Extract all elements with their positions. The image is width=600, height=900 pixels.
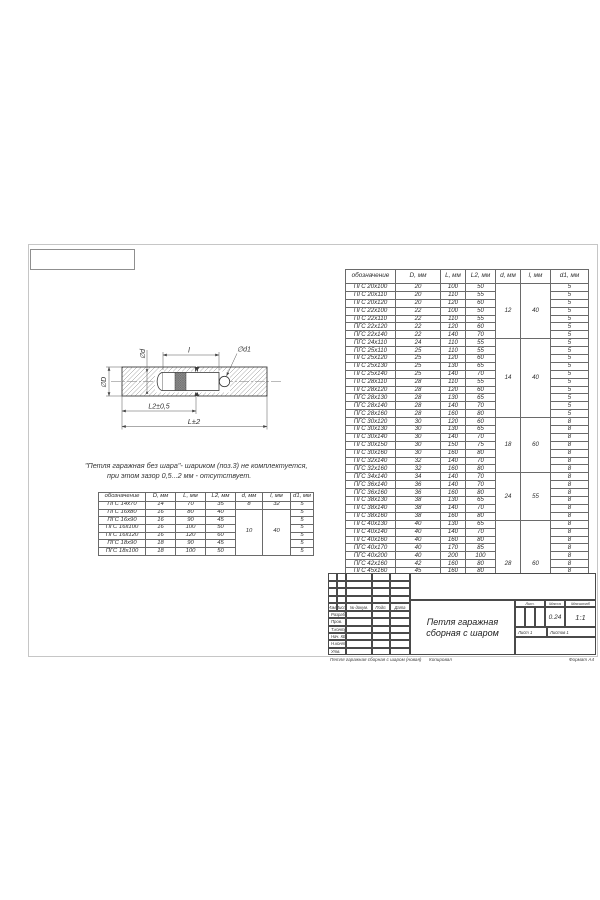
cell-designation: ПГС 14х70 [99, 502, 146, 510]
cell-designation: ПГС 36х140 [346, 481, 396, 489]
titleblock-cell: Изм. [328, 603, 337, 611]
table-row: ПГС 22х12022120605 [346, 323, 589, 331]
table-row: ПГС 30х13030130658 [346, 426, 589, 434]
cell-L2: 85 [466, 544, 496, 552]
titleblock-cell [515, 637, 596, 655]
cell-d: 14 [496, 339, 521, 418]
corner-stamp-box [30, 249, 135, 270]
table-row: ПГС 40х200402001008 [346, 552, 589, 560]
cell-D: 28 [396, 410, 441, 418]
cell-designation: ПГС 32х160 [346, 465, 396, 473]
cell-L2: 70 [466, 402, 496, 410]
note-line-1: "Петля гаражная без шара"- шариком (поз.… [85, 461, 307, 470]
titleblock-cell [390, 640, 410, 647]
cell-d1: 8 [551, 528, 589, 536]
header-cell: L, мм [441, 270, 466, 284]
cell-L2: 75 [466, 441, 496, 449]
titleblock-cell [337, 588, 346, 596]
table-row: ПГС 40х16040160808 [346, 536, 589, 544]
cell-L2: 70 [466, 473, 496, 481]
table-row: ПГС 30х16030160808 [346, 449, 589, 457]
header-cell: l, мм [521, 270, 551, 284]
cell-designation: ПГС 36х160 [346, 489, 396, 497]
titleblock-cell [372, 626, 390, 633]
cell-l: 40 [521, 339, 551, 418]
titleblock-cell [390, 596, 410, 604]
cell-d1: 8 [551, 441, 589, 449]
cell-L2: 70 [466, 504, 496, 512]
table-header-row: обозначениеD, ммL, ммL2, ммd, ммl, ммd1,… [346, 270, 589, 284]
cell-L: 130 [441, 426, 466, 434]
cell-L2: 70 [466, 528, 496, 536]
cell-l: 40 [263, 509, 291, 555]
cell-L: 140 [441, 433, 466, 441]
cell-designation: ПГС 20х100 [346, 284, 396, 292]
titleblock-cell [372, 633, 390, 640]
cell-d1: 8 [551, 512, 589, 520]
titleblock-cell [346, 581, 372, 589]
cell-D: 34 [396, 473, 441, 481]
cell-L: 140 [441, 528, 466, 536]
cell-d1: 5 [291, 502, 314, 510]
titleblock-cell [372, 648, 390, 655]
cell-designation: ПГС 38х130 [346, 497, 396, 505]
cell-D: 38 [396, 512, 441, 520]
cell-L2: 60 [466, 355, 496, 363]
cell-L2: 50 [206, 548, 236, 556]
cell-designation: ПГС 30х140 [346, 433, 396, 441]
titleblock-cell [515, 607, 525, 627]
table-row: ПГС 36х14036140708 [346, 481, 589, 489]
cell-d1: 5 [551, 410, 589, 418]
cell-D: 18 [146, 540, 176, 548]
cell-L2: 45 [206, 540, 236, 548]
cell-d1: 8 [551, 520, 589, 528]
cell-L2: 45 [206, 517, 236, 525]
cell-D: 30 [396, 418, 441, 426]
cell-L: 100 [441, 307, 466, 315]
cell-L: 130 [441, 362, 466, 370]
cell-L: 160 [441, 560, 466, 568]
table-row: ПГС 30х120301206018608 [346, 418, 589, 426]
cell-d1: 5 [551, 284, 589, 292]
table-row: ПГС 22х14022140705 [346, 331, 589, 339]
table-row: ПГС 16х8016804010405 [99, 509, 314, 517]
cell-L: 160 [441, 489, 466, 497]
cell-L: 140 [441, 370, 466, 378]
cell-D: 20 [396, 299, 441, 307]
titleblock-cell [346, 626, 372, 633]
cell-L2: 55 [466, 347, 496, 355]
cell-D: 25 [396, 355, 441, 363]
titleblock-cell: 1:1 [565, 607, 596, 627]
cell-designation: ПГС 22х110 [346, 315, 396, 323]
cell-D: 32 [396, 457, 441, 465]
cell-D: 25 [396, 370, 441, 378]
table-row: ПГС 36х16036160808 [346, 489, 589, 497]
cell-L2: 65 [466, 520, 496, 528]
titleblock-cell [337, 596, 346, 604]
cell-d1: 8 [551, 465, 589, 473]
cell-D: 28 [396, 394, 441, 402]
cell-d1: 8 [551, 536, 589, 544]
header-cell: d, мм [236, 493, 263, 502]
cell-d: 18 [496, 418, 521, 473]
titleblock-cell [346, 596, 372, 604]
table-row: ПГС 14х701470358325 [99, 502, 314, 510]
cell-d1: 5 [551, 386, 589, 394]
cell-L2: 50 [466, 307, 496, 315]
cell-D: 36 [396, 481, 441, 489]
titleblock-cell: Лист [337, 603, 346, 611]
titleblock-cell: 0.24 [545, 607, 565, 627]
table-row: ПГС 38х14038140708 [346, 504, 589, 512]
cell-designation: ПГС 28х120 [346, 386, 396, 394]
cell-designation: ПГС 40х130 [346, 520, 396, 528]
cell-D: 40 [396, 528, 441, 536]
titleblock-cell: Дата [390, 603, 410, 611]
header-cell: обозначение [99, 493, 146, 502]
titleblock-cell: Подп. [372, 603, 390, 611]
cell-l: 40 [521, 284, 551, 339]
cell-L: 160 [441, 536, 466, 544]
titleblock-cell [390, 573, 410, 581]
cell-designation: ПГС 25х140 [346, 370, 396, 378]
titleblock-cell [372, 588, 390, 596]
titleblock-cell [390, 626, 410, 633]
cell-d1: 5 [551, 355, 589, 363]
cell-L: 110 [441, 291, 466, 299]
cell-L: 90 [176, 540, 206, 548]
cell-L2: 70 [466, 457, 496, 465]
table-row: ПГС 42х16042160808 [346, 560, 589, 568]
main-spec-table: обозначениеD, ммL, ммL2, ммd, ммl, ммd1,… [345, 269, 589, 608]
table-row: ПГС 20х11020110555 [346, 291, 589, 299]
cell-D: 30 [396, 449, 441, 457]
titleblock-cell [346, 633, 372, 640]
titleblock-cell: Разраб. [328, 611, 346, 618]
cell-D: 40 [396, 552, 441, 560]
cell-designation: ПГС 30х150 [346, 441, 396, 449]
cell-d1: 5 [551, 394, 589, 402]
cell-L: 160 [441, 465, 466, 473]
titleblock-cell [390, 633, 410, 640]
cell-L: 120 [441, 355, 466, 363]
titleblock-cell [328, 581, 337, 589]
drawing-title: Петля гаражная сборная с шаром [410, 600, 515, 655]
cell-l: 55 [521, 473, 551, 520]
cell-d1: 5 [551, 370, 589, 378]
cell-designation: ПГС 18х90 [99, 540, 146, 548]
header-cell: D, мм [396, 270, 441, 284]
cell-L2: 55 [466, 315, 496, 323]
titleblock-cell [372, 618, 390, 625]
cell-L: 140 [441, 402, 466, 410]
dim-label-l: l [188, 346, 190, 355]
cell-D: 16 [146, 532, 176, 540]
header-cell: обозначение [346, 270, 396, 284]
cell-D: 16 [146, 517, 176, 525]
titleblock-cell [328, 596, 337, 604]
table-row: ПГС 24х110241105514405 [346, 339, 589, 347]
drawing-title-line2: сборная с шаром [426, 628, 499, 639]
cell-L2: 60 [206, 532, 236, 540]
cell-D: 30 [396, 433, 441, 441]
cell-D: 14 [146, 502, 176, 510]
cell-designation: ПГС 42х160 [346, 560, 396, 568]
titleblock-cell [525, 607, 535, 627]
cell-L: 70 [176, 502, 206, 510]
titleblock-cell [346, 611, 372, 618]
cell-designation: ПГС 40х140 [346, 528, 396, 536]
table-row: ПГС 25х12025120605 [346, 355, 589, 363]
titleblock-cell [346, 640, 372, 647]
cell-L: 90 [176, 517, 206, 525]
cell-L: 120 [441, 323, 466, 331]
table-row: ПГС 25х13025130655 [346, 362, 589, 370]
cell-L2: 65 [466, 394, 496, 402]
titleblock-cell: Нач. КБ [328, 633, 346, 640]
hinge-section-drawing: ∅D ∅d l ∅d1 L2±0,5 L±2 [75, 330, 305, 435]
cell-designation: ПГС 28х110 [346, 378, 396, 386]
table-row: ПГС 30х14030140708 [346, 433, 589, 441]
cell-D: 30 [396, 441, 441, 449]
cell-designation: ПГС 40х170 [346, 544, 396, 552]
table-row: ПГС 32х14032140708 [346, 457, 589, 465]
cell-D: 36 [396, 489, 441, 497]
table-row: ПГС 40х14040140708 [346, 528, 589, 536]
cell-L2: 50 [206, 525, 236, 533]
cell-D: 18 [146, 548, 176, 556]
cell-D: 32 [396, 465, 441, 473]
ball [219, 376, 229, 386]
titleblock-cell: Масштаб [565, 600, 596, 607]
table-row: ПГС 32х16032160808 [346, 465, 589, 473]
cell-d1: 8 [551, 544, 589, 552]
cell-designation: ПГС 25х130 [346, 362, 396, 370]
cell-L: 100 [441, 284, 466, 292]
cell-D: 30 [396, 426, 441, 434]
cell-d1: 5 [551, 378, 589, 386]
header-cell: L, мм [176, 493, 206, 502]
cell-designation: ПГС 34х140 [346, 473, 396, 481]
cell-L2: 60 [466, 418, 496, 426]
pin-band-hatch [175, 373, 186, 391]
cell-d1: 5 [551, 402, 589, 410]
cell-L: 80 [176, 509, 206, 517]
cell-L: 130 [441, 394, 466, 402]
cell-L: 140 [441, 481, 466, 489]
cell-L2: 35 [206, 502, 236, 510]
cell-d1: 5 [551, 291, 589, 299]
table-header-row: обозначениеD, ммL, ммL2, ммd, ммl, ммd1,… [99, 493, 314, 502]
titleblock-cell [390, 618, 410, 625]
titleblock-cell [390, 611, 410, 618]
cell-designation: ПГС 22х140 [346, 331, 396, 339]
cell-D: 24 [396, 339, 441, 347]
cell-D: 16 [146, 509, 176, 517]
cell-designation: ПГС 28х140 [346, 402, 396, 410]
cell-d1: 5 [551, 323, 589, 331]
cell-designation: ПГС 40х160 [346, 536, 396, 544]
cell-d1: 8 [551, 504, 589, 512]
table-row: ПГС 40х130401306528608 [346, 520, 589, 528]
cell-designation: ПГС 30х130 [346, 426, 396, 434]
titleblock-cell [346, 648, 372, 655]
cell-D: 38 [396, 497, 441, 505]
cell-designation: ПГС 38х140 [346, 504, 396, 512]
cell-designation: ПГС 25х120 [346, 355, 396, 363]
dim-label-dia-d: ∅d [140, 348, 147, 359]
cell-d1: 5 [291, 509, 314, 517]
titleblock-cell [328, 573, 337, 581]
cell-L2: 70 [466, 370, 496, 378]
cell-designation: ПГС 24х110 [346, 339, 396, 347]
cell-L2: 80 [466, 465, 496, 473]
titleblock-cell: Т.контр. [328, 626, 346, 633]
cell-d1: 8 [551, 552, 589, 560]
titleblock-cell [390, 648, 410, 655]
titleblock-cell: Масса [545, 600, 565, 607]
cell-d: 8 [236, 502, 263, 510]
table-row: ПГС 40х17040170858 [346, 544, 589, 552]
cell-D: 25 [396, 347, 441, 355]
cell-designation: ПГС 30х120 [346, 418, 396, 426]
cell-L2: 65 [466, 497, 496, 505]
cell-D: 16 [146, 525, 176, 533]
cell-L: 100 [176, 548, 206, 556]
titleblock-cell [372, 640, 390, 647]
cell-L: 110 [441, 339, 466, 347]
table-row: ПГС 20х100201005012405 [346, 284, 589, 292]
cell-d1: 5 [551, 307, 589, 315]
table-row: ПГС 30х15030150758 [346, 441, 589, 449]
cell-D: 42 [396, 560, 441, 568]
cell-d1: 8 [551, 449, 589, 457]
cell-L: 110 [441, 347, 466, 355]
cell-designation: ПГС 30х160 [346, 449, 396, 457]
table-row: ПГС 25х11025110555 [346, 347, 589, 355]
header-cell: L2, мм [466, 270, 496, 284]
cell-d1: 5 [551, 362, 589, 370]
titleblock-cell [337, 581, 346, 589]
cell-L2: 70 [466, 481, 496, 489]
pin [162, 373, 219, 391]
cell-d1: 5 [551, 315, 589, 323]
cell-L2: 70 [466, 331, 496, 339]
cell-L: 100 [176, 525, 206, 533]
cell-d1: 8 [551, 418, 589, 426]
cell-d1: 5 [551, 331, 589, 339]
cell-L: 130 [441, 520, 466, 528]
titleblock-cell [337, 573, 346, 581]
cell-d1: 8 [551, 473, 589, 481]
titleblock-cell [328, 588, 337, 596]
header-cell: d1, мм [291, 493, 314, 502]
cell-d: 12 [496, 284, 521, 339]
cell-L2: 65 [466, 362, 496, 370]
cell-D: 20 [396, 284, 441, 292]
cell-L2: 60 [466, 323, 496, 331]
cell-d1: 5 [291, 548, 314, 556]
table-row: ПГС 28х16028160805 [346, 410, 589, 418]
header-cell: d, мм [496, 270, 521, 284]
titleblock-cell [372, 596, 390, 604]
table-row: ПГС 38х16038160808 [346, 512, 589, 520]
cell-d1: 8 [551, 497, 589, 505]
cell-L2: 55 [466, 291, 496, 299]
table-row: ПГС 22х10022100505 [346, 307, 589, 315]
cell-D: 40 [396, 536, 441, 544]
cell-d: 24 [496, 473, 521, 520]
cell-L2: 40 [206, 509, 236, 517]
dim-label-dia-d1: ∅d1 [237, 347, 251, 354]
cell-D: 38 [396, 504, 441, 512]
titleblock-cell [346, 573, 372, 581]
cell-L: 170 [441, 544, 466, 552]
cell-d1: 5 [291, 525, 314, 533]
cell-d1: 8 [551, 481, 589, 489]
titleblock-cell: Листов 1 [547, 627, 596, 637]
footer-filename: Петля гаражная сборная с шаром (новая) [330, 657, 421, 662]
titleblock-cell [390, 581, 410, 589]
titleblock-cell [372, 581, 390, 589]
cell-L: 160 [441, 512, 466, 520]
cell-L2: 80 [466, 560, 496, 568]
cell-d: 10 [236, 509, 263, 555]
cell-designation: ПГС 16х80 [99, 509, 146, 517]
cell-designation: ПГС 16х120 [99, 532, 146, 540]
cell-L: 160 [441, 449, 466, 457]
cell-designation: ПГС 32х140 [346, 457, 396, 465]
cell-L: 200 [441, 552, 466, 560]
cell-D: 22 [396, 307, 441, 315]
cell-d1: 5 [291, 532, 314, 540]
cell-L: 120 [441, 386, 466, 394]
cell-d1: 8 [551, 489, 589, 497]
cell-D: 28 [396, 386, 441, 394]
cell-d1: 5 [551, 347, 589, 355]
cell-l: 60 [521, 418, 551, 473]
cell-designation: ПГС 20х110 [346, 291, 396, 299]
cell-d1: 8 [551, 433, 589, 441]
cell-L2: 60 [466, 386, 496, 394]
table-row: ПГС 22х11022110555 [346, 315, 589, 323]
table-row: ПГС 34х140341407024558 [346, 473, 589, 481]
cell-D: 22 [396, 331, 441, 339]
table-row: ПГС 25х14025140705 [346, 370, 589, 378]
small-spec-table: обозначениеD, ммL, ммL2, ммd, ммl, ммd1,… [98, 492, 314, 556]
cell-L2: 80 [466, 512, 496, 520]
titleblock-cell: № докум. [346, 603, 372, 611]
titleblock-cell: Н.контр. [328, 640, 346, 647]
cell-L: 120 [441, 299, 466, 307]
cell-D: 40 [396, 544, 441, 552]
titleblock-cell [346, 618, 372, 625]
cell-designation: ПГС 25х110 [346, 347, 396, 355]
dim-label-dia-D: ∅D [101, 377, 108, 388]
cell-L: 120 [176, 532, 206, 540]
cell-D: 22 [396, 315, 441, 323]
titleblock-cell [372, 611, 390, 618]
cell-d1: 5 [551, 339, 589, 347]
dim-label-L2: L2±0,5 [148, 404, 169, 411]
header-cell: L2, мм [206, 493, 236, 502]
cell-designation: ПГС 28х130 [346, 394, 396, 402]
cell-designation: ПГС 28х160 [346, 410, 396, 418]
titleblock-cell [372, 573, 390, 581]
dim-label-L: L±2 [188, 417, 201, 426]
